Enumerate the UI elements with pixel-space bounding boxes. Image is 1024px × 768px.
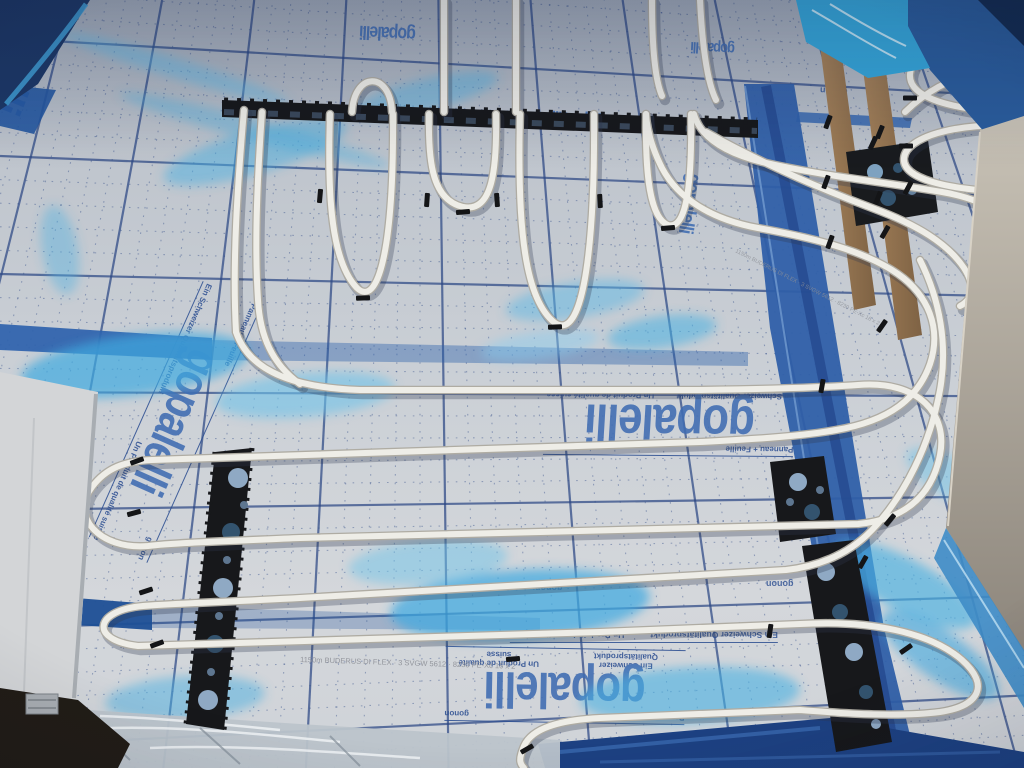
- pipe-clip: [424, 193, 430, 207]
- pipe-clip: [899, 144, 913, 149]
- underfloor-heating-photo: Panneau + Feuillegonon gopalelli Ein Sch…: [0, 0, 1024, 768]
- door-hinge: [26, 694, 58, 714]
- pipe-clip: [494, 193, 500, 207]
- pipe-clip: [356, 295, 370, 300]
- pipe-clip: [597, 194, 603, 208]
- pipe-clip: [548, 324, 562, 329]
- pipe-clip: [127, 509, 142, 517]
- plastic-sheet: [88, 710, 560, 768]
- pipe-clip: [903, 96, 917, 101]
- wall-left: [0, 372, 98, 700]
- pipe-clip: [139, 586, 154, 595]
- pipe-clip: [317, 189, 323, 203]
- heating-pipe: [429, 114, 496, 208]
- pipe-marking: 1150m BUDERUS DI FLEX · 3 SVGW 5612 · 82…: [300, 655, 516, 671]
- scene-overlay: 1150m BUDERUS DI FLEX · 3 SVGW 5612 · 82…: [0, 0, 1024, 768]
